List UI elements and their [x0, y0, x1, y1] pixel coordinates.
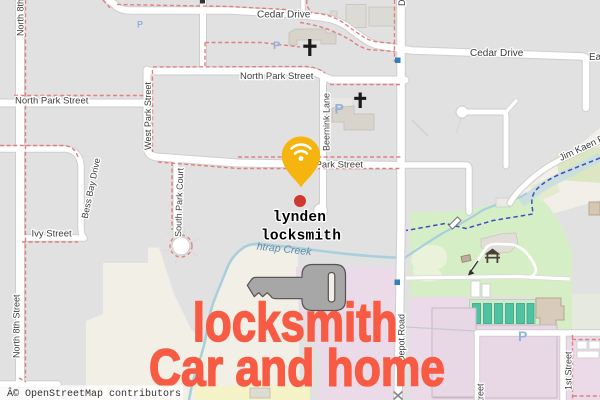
svg-text:Cedar Drive: Cedar Drive [257, 10, 311, 21]
svg-text:1st Street: 1st Street [564, 351, 574, 390]
svg-text:North Park Street: North Park Street [240, 71, 314, 82]
svg-text:North 8th: North 8th [16, 0, 26, 36]
svg-text:North 8th Street: North 8th Street [12, 294, 22, 358]
svg-text:locksmith: locksmith [261, 229, 341, 245]
svg-text:Depot Road: Depot Road [397, 0, 407, 6]
svg-text:3rd Street: 3rd Street [476, 383, 486, 400]
svg-text:Beernink Lane: Beernink Lane [322, 93, 332, 151]
svg-text:P: P [137, 20, 143, 30]
svg-text:lynden: lynden [273, 210, 326, 226]
svg-text:Cedar Drive: Cedar Drive [470, 48, 524, 59]
svg-text:North Park Street: North Park Street [15, 96, 89, 107]
svg-text:Park Street: Park Street [316, 160, 364, 171]
svg-text:Car and home: Car and home [149, 340, 445, 398]
svg-text:East: East [589, 52, 600, 63]
svg-text:P: P [518, 328, 527, 344]
svg-text:Ivy Street: Ivy Street [32, 229, 72, 240]
svg-text:P: P [273, 40, 280, 52]
svg-text:Â© OpenStreetMap contributors: Â© OpenStreetMap contributors [7, 386, 181, 400]
svg-text:P: P [335, 101, 344, 117]
svg-text:West Park Street: West Park Street [143, 82, 153, 150]
